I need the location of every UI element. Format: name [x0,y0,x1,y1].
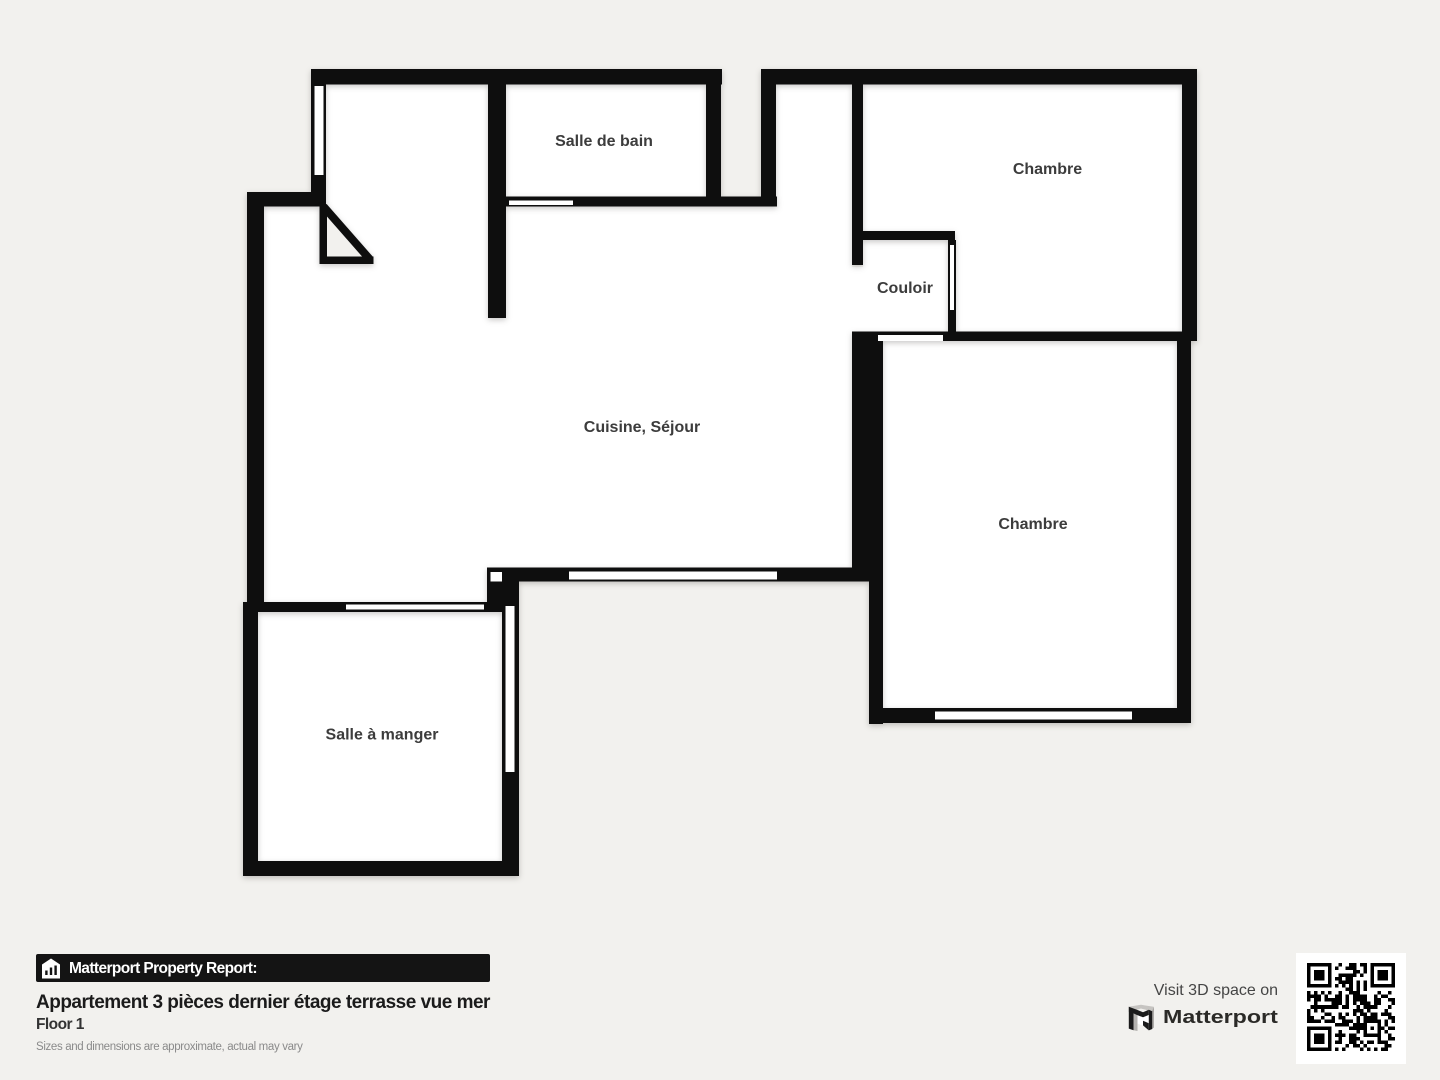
svg-text:Chambre: Chambre [998,516,1067,533]
svg-text:Couloir: Couloir [877,280,933,297]
svg-text:Salle à manger: Salle à manger [326,727,439,744]
svg-text:Chambre: Chambre [1013,161,1082,178]
svg-text:Salle de bain: Salle de bain [555,133,653,150]
svg-text:Cuisine, Séjour: Cuisine, Séjour [584,419,700,436]
